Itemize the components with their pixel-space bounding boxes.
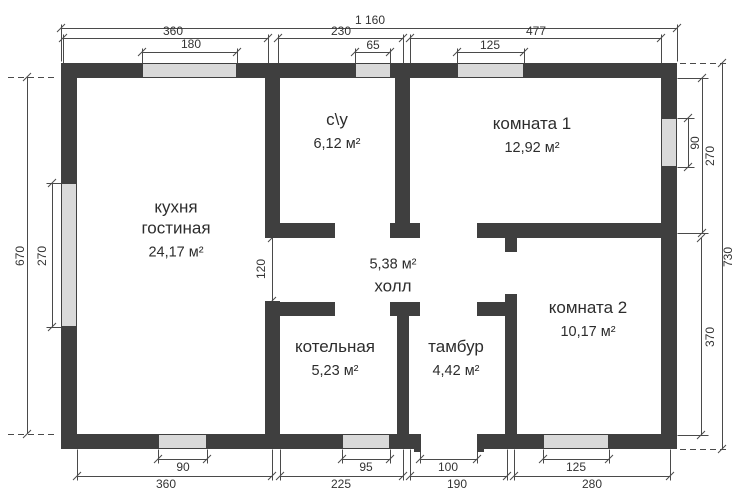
window-room2-bottom [543, 434, 609, 449]
dim-label-left-height: 670 [14, 246, 26, 266]
dim-label-hall-passage: 120 [255, 259, 267, 279]
window-room1-top [457, 63, 524, 78]
wall-kitchen-upper [265, 78, 280, 238]
room-name-boiler: котельная [295, 336, 375, 357]
room-label-room2: комната 2 10,17 м² [549, 297, 627, 341]
entrance-jamb-right [477, 434, 484, 452]
room-name-kitchen-line2: гостиная [141, 218, 210, 239]
dim-label-right-window: 90 [689, 136, 701, 149]
room-area-kitchen: 24,17 м² [141, 244, 210, 262]
room-name-bathroom: с\у [313, 109, 360, 130]
dim-label-entrance-door: 100 [438, 461, 458, 473]
wall-bathroom-room1 [395, 78, 410, 223]
wall-kitchen-lower [265, 301, 280, 434]
room-area-boiler: 5,23 м² [295, 362, 375, 380]
room-name-room2: комната 2 [549, 297, 627, 318]
window-right [661, 118, 677, 167]
wall-hall-bottom-b [390, 302, 420, 316]
dim-label-top-room1-width: 477 [526, 25, 546, 37]
dim-label-bathroom-window: 65 [366, 39, 379, 51]
wall-hall-bottom-a [265, 302, 335, 316]
room-label-tambour: тамбур 4,42 м² [428, 336, 484, 380]
wall-rooms-divider [477, 223, 661, 238]
room-area-tambour: 4,42 м² [428, 362, 484, 380]
window-kitchen-bottom [158, 434, 207, 449]
dim-label-room1-window: 125 [480, 39, 500, 51]
wall-boiler-tambour [397, 316, 409, 434]
dim-label-room2-width: 280 [582, 478, 602, 490]
window-boiler-bottom [342, 434, 390, 449]
window-bathroom-top [355, 63, 391, 78]
dim-label-top-kitchen-width: 360 [163, 25, 183, 37]
dim-label-left-window: 270 [36, 246, 48, 266]
dim-label-right-total: 730 [722, 247, 734, 267]
wall-hall-top-b [390, 223, 420, 238]
room-name-kitchen-line1: кухня [141, 197, 210, 218]
window-left [61, 183, 77, 327]
wall-tambour-room2-lower [505, 294, 517, 434]
window-kitchen-top [142, 63, 237, 78]
room-label-hall: 5,38 м² холл [369, 256, 416, 297]
room-area-room1: 12,92 м² [493, 139, 571, 157]
room-label-bathroom: с\у 6,12 м² [313, 109, 360, 153]
dim-label-tambour-width: 190 [447, 478, 467, 490]
room-name-hall: холл [369, 276, 416, 297]
dim-label-room2-height: 370 [704, 327, 716, 347]
dim-label-room1-height: 270 [704, 146, 716, 166]
room-label-boiler: котельная 5,23 м² [295, 336, 375, 380]
room-area-hall: 5,38 м² [369, 256, 416, 274]
room-name-tambour: тамбур [428, 336, 484, 357]
dim-label-top-mid-width: 230 [331, 25, 351, 37]
dim-label-top-total: 1 160 [355, 14, 385, 26]
entrance-jamb-left [414, 434, 421, 452]
room-name-room1: комната 1 [493, 113, 571, 134]
room-label-kitchen: кухня гостиная 24,17 м² [141, 197, 210, 262]
room-label-room1: комната 1 12,92 м² [493, 113, 571, 157]
room-area-bathroom: 6,12 м² [313, 135, 360, 153]
dim-label-room2-window: 125 [566, 461, 586, 473]
entrance-door-opening [421, 434, 477, 449]
floor-plan: кухня гостиная 24,17 м² с\у 6,12 м² комн… [0, 0, 742, 502]
wall-hall-top-a [265, 223, 335, 238]
wall-tambour-room2-upper [505, 238, 517, 252]
dim-label-bottom-kitchen-window: 90 [176, 461, 189, 473]
dim-label-boiler-window: 95 [359, 461, 372, 473]
dim-label-boiler-width: 225 [331, 478, 351, 490]
dim-label-kitchen-window: 180 [181, 38, 201, 50]
dim-label-bottom-kitchen-width: 360 [156, 478, 176, 490]
room-area-room2: 10,17 м² [549, 323, 627, 341]
